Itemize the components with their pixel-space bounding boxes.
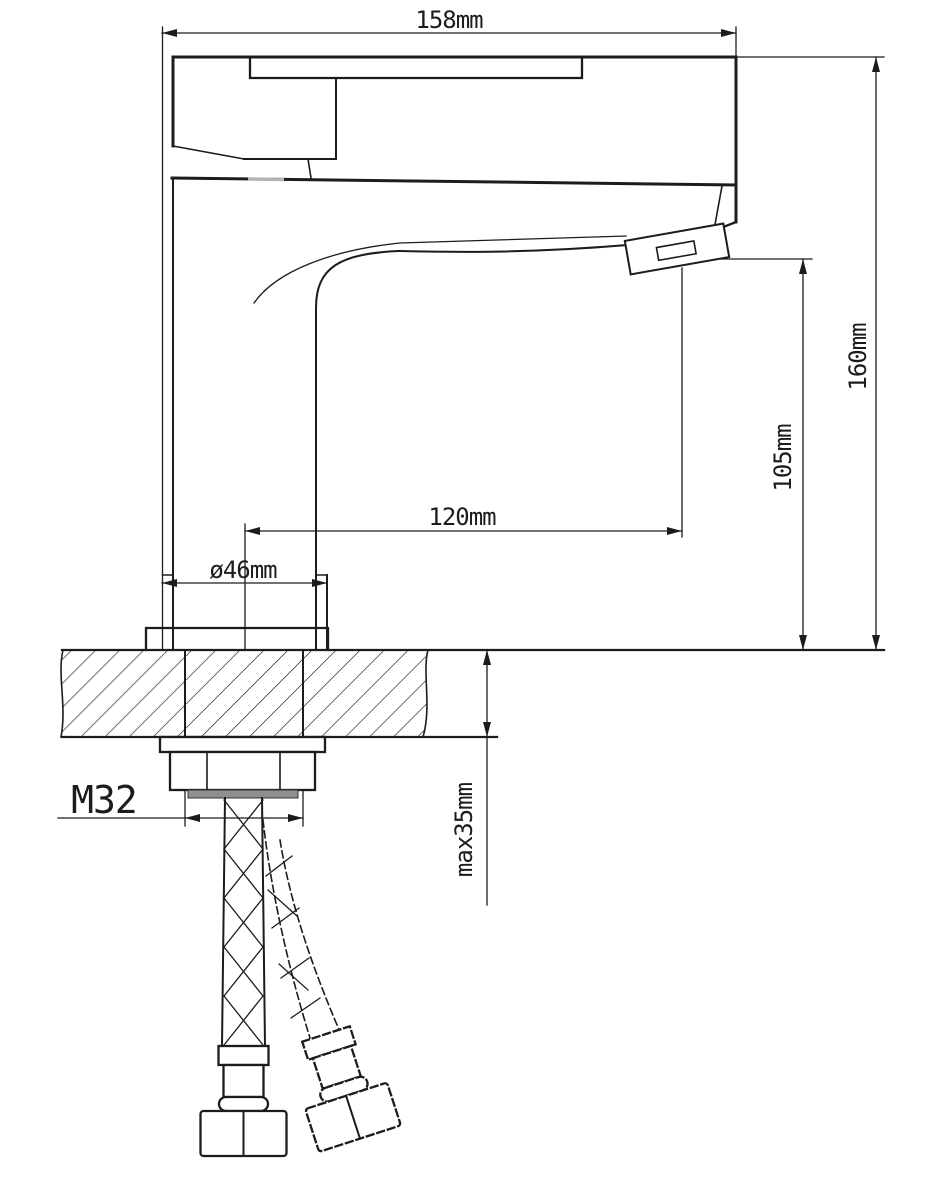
label-total-height: 160mm	[844, 323, 872, 391]
mounting-washer	[160, 737, 325, 752]
arrow-m32-right	[288, 814, 303, 822]
left-fitting-collar	[219, 1097, 268, 1111]
arrow-158-right	[721, 29, 736, 37]
handle-recess	[250, 57, 582, 78]
left-hose-braid	[224, 800, 263, 1045]
spout-contour-line	[254, 236, 626, 303]
arrow-m32-left	[185, 814, 200, 822]
label-spout-reach: 120mm	[428, 503, 496, 531]
arrow-160-top	[872, 57, 880, 72]
countertop-hatch	[61, 650, 428, 737]
mounting-nut	[170, 752, 315, 790]
arrow-120-left	[245, 527, 260, 535]
arrow-46-left	[162, 579, 177, 587]
handle-body-joint	[308, 159, 311, 178]
arrow-35-bottom	[483, 722, 491, 737]
label-base-diameter: ø46mm	[209, 556, 277, 584]
right-hose-braid	[266, 856, 320, 1018]
label-thread: M32	[71, 778, 137, 822]
label-outlet-height: 105mm	[769, 424, 797, 492]
spout-underside-and-column-right	[316, 245, 628, 650]
left-hose-fitting	[201, 1046, 287, 1156]
mounting-hardware	[160, 737, 325, 798]
left-fitting-ferrule	[219, 1046, 269, 1065]
body-top-grey-segment	[248, 179, 284, 180]
flexible-hoses	[201, 798, 401, 1156]
faucet-technical-drawing: 158mm 160mm 105mm 120mm ø46mm max35mm M3…	[0, 0, 927, 1200]
left-fitting-body	[224, 1065, 264, 1097]
arrow-105-top	[799, 259, 807, 274]
arrow-105-bottom	[799, 635, 807, 650]
right-hose-left-edge	[263, 820, 310, 1038]
label-countertop-thickness: max35mm	[450, 782, 478, 877]
right-hose-fitting	[285, 1021, 401, 1152]
right-hose-right-edge	[280, 840, 340, 1032]
arrow-160-bottom	[872, 635, 880, 650]
arrow-35-top	[483, 650, 491, 665]
countertop-section	[61, 650, 884, 737]
handle-bottom-slant	[173, 146, 244, 159]
technical-drawing-page: 158mm 160mm 105mm 120mm ø46mm max35mm M3…	[0, 0, 927, 1200]
arrow-158-left	[162, 29, 177, 37]
arrow-46-right	[312, 579, 327, 587]
arrow-120-right	[667, 527, 682, 535]
seal-gasket	[188, 790, 298, 798]
left-hose-left-edge	[222, 798, 225, 1046]
aerator	[625, 224, 729, 275]
label-top-width: 158mm	[415, 6, 483, 34]
